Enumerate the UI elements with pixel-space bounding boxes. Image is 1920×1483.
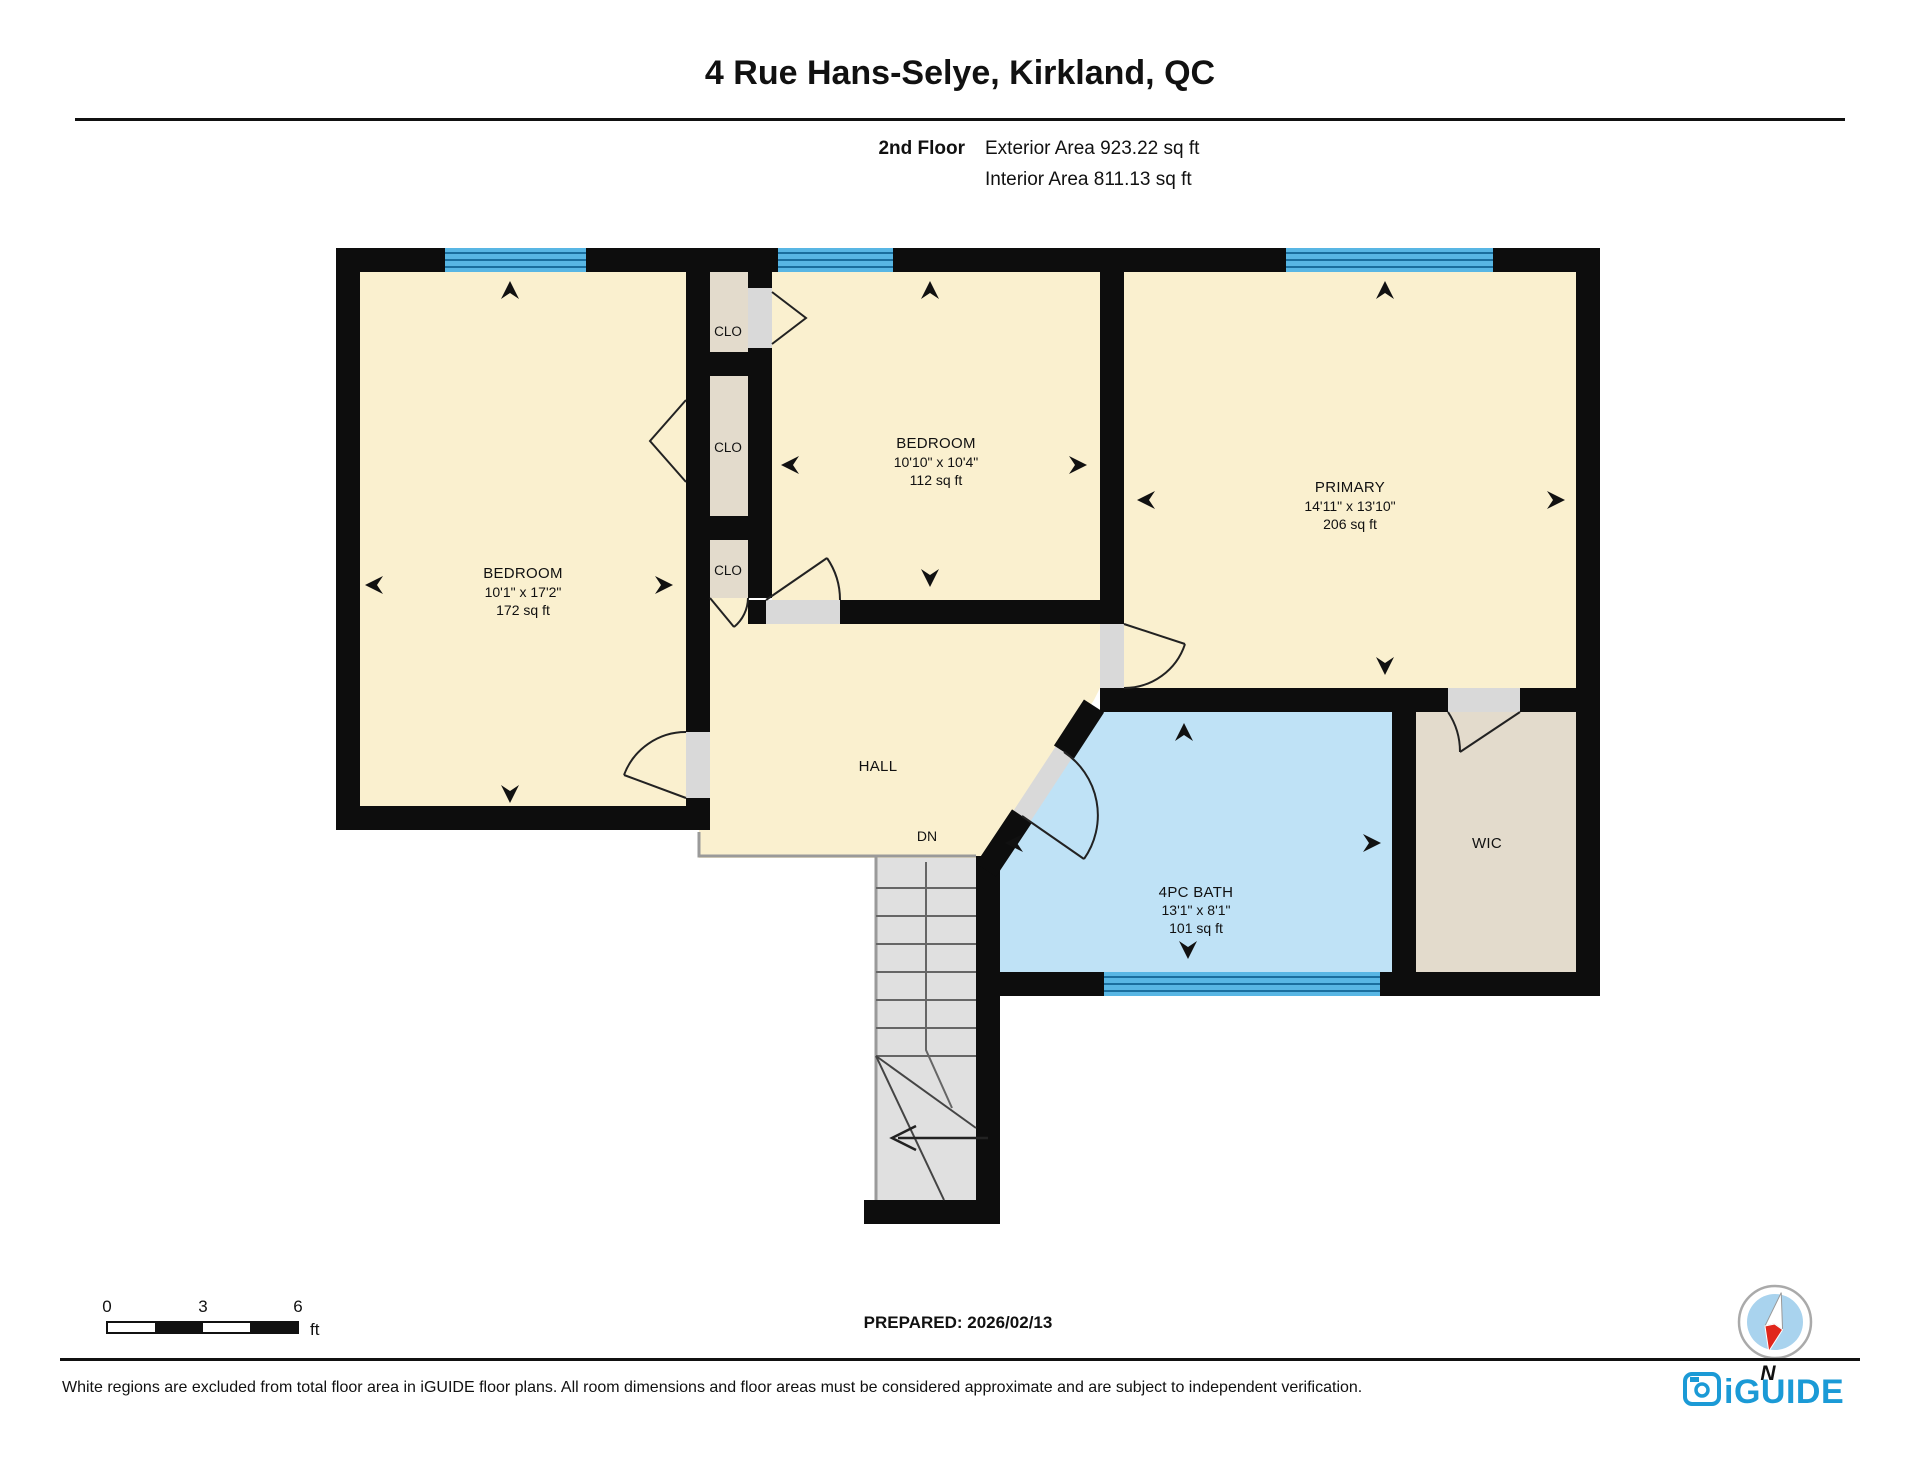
iguide-camera-icon [1685, 1374, 1719, 1404]
label-bedroom-left-dims: 10'1" x 17'2" [485, 584, 562, 600]
label-bedroom-middle-dims: 10'10" x 10'4" [894, 454, 979, 470]
footer-disclaimer: White regions are excluded from total fl… [62, 1379, 1362, 1396]
label-primary-name: PRIMARY [1315, 479, 1385, 496]
compass: N [1739, 1286, 1811, 1385]
label-bedroom-middle-name: BEDROOM [896, 435, 976, 452]
floor-label: 2nd Floor [878, 138, 965, 159]
label-wic: WIC [1472, 835, 1502, 852]
room-closet-top [710, 272, 748, 352]
jamb-closet-top [748, 288, 772, 348]
label-dn: DN [917, 828, 937, 844]
label-bedroom-middle-area: 112 sq ft [910, 472, 963, 488]
scale-tick-0: 0 [102, 1297, 111, 1316]
exterior-area: Exterior Area 923.22 sq ft [985, 138, 1200, 159]
jamb-wic-door [1448, 688, 1520, 712]
window-primary [1286, 248, 1493, 272]
iguide-logo: iGUIDE [1685, 1373, 1844, 1411]
label-primary-dims: 14'11" x 13'10" [1304, 498, 1395, 514]
scale-tick-6: 6 [293, 1297, 302, 1316]
scale-bar: 0 3 6 ft [102, 1297, 319, 1339]
label-bedroom-left-name: BEDROOM [483, 565, 563, 582]
label-closet-middle: CLO [714, 440, 742, 455]
label-bedroom-left-area: 172 sq ft [496, 602, 550, 618]
scale-unit: ft [310, 1320, 320, 1339]
label-bath-name: 4PC BATH [1159, 884, 1234, 901]
jamb-bedroom-middle-door [766, 600, 840, 624]
prepared-date: PREPARED: 2026/02/13 [864, 1313, 1053, 1332]
room-bedroom-left [360, 272, 686, 806]
label-closet-top: CLO [714, 324, 742, 339]
label-bath-area: 101 sq ft [1169, 920, 1223, 936]
window-bedroom-left [445, 248, 586, 272]
jamb-bedroom-left-door [686, 732, 710, 798]
window-bath [1104, 972, 1380, 996]
label-primary-area: 206 sq ft [1323, 516, 1377, 532]
window-bedroom-middle [778, 248, 893, 272]
interior-area: Interior Area 811.13 sq ft [985, 169, 1192, 190]
label-closet-bottom: CLO [714, 563, 742, 578]
page-title: 4 Rue Hans-Selye, Kirkland, QC [705, 54, 1215, 92]
floor-plan-page: 4 Rue Hans-Selye, Kirkland, QC 2nd Floor… [0, 0, 1920, 1483]
label-hall: HALL [859, 758, 898, 775]
footer-divider [60, 1358, 1860, 1361]
jamb-primary-door [1100, 624, 1124, 688]
header-divider [75, 118, 1845, 121]
iguide-logo-text: iGUIDE [1724, 1373, 1844, 1411]
label-bath-dims: 13'1" x 8'1" [1162, 902, 1231, 918]
scale-tick-3: 3 [198, 1297, 207, 1316]
